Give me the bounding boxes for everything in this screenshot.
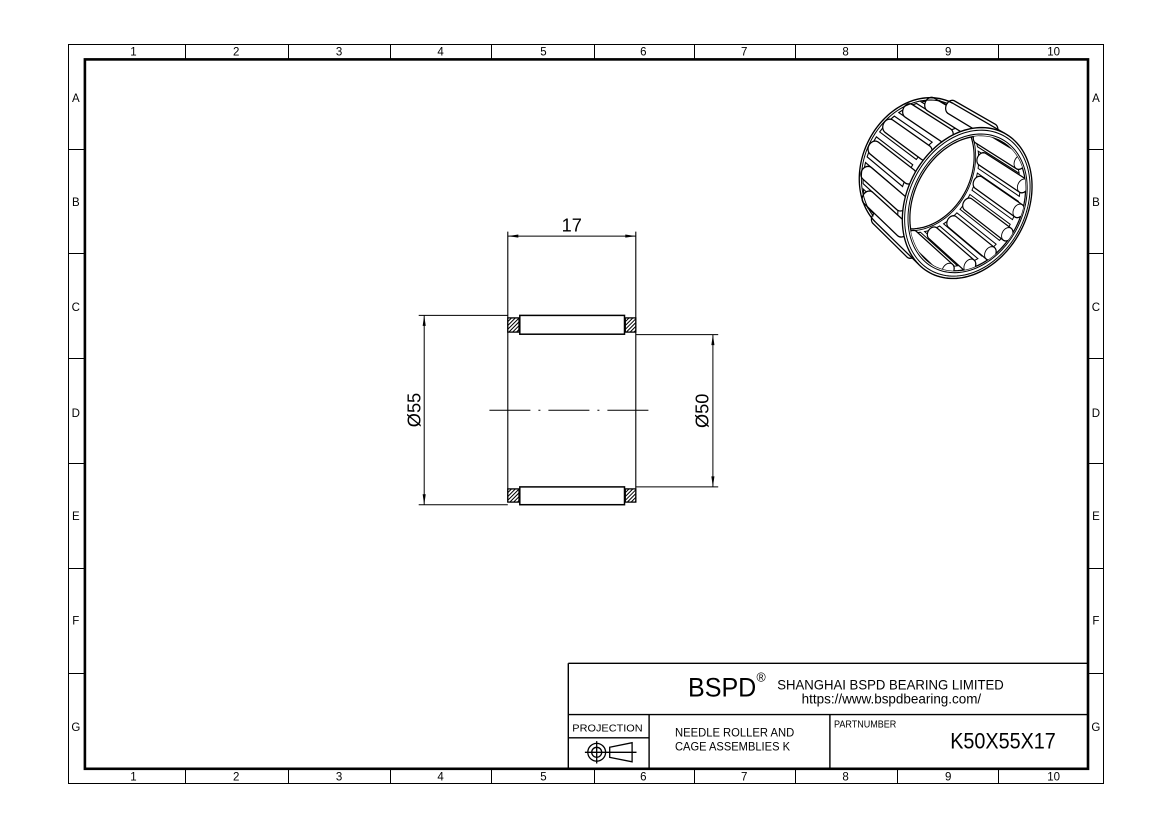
svg-text:Ø50: Ø50 <box>693 394 713 428</box>
svg-text:K50X55X17: K50X55X17 <box>950 729 1056 754</box>
svg-text:10: 10 <box>1047 772 1060 784</box>
svg-text:7: 7 <box>741 772 747 784</box>
svg-text:C: C <box>1092 302 1100 314</box>
svg-text:NEEDLE ROLLER AND: NEEDLE ROLLER AND <box>675 725 794 739</box>
svg-text:8: 8 <box>842 47 848 59</box>
svg-text:PARTNUMBER: PARTNUMBER <box>834 719 896 730</box>
svg-text:5: 5 <box>540 772 546 784</box>
svg-text:D: D <box>1092 408 1100 420</box>
svg-text:B: B <box>1092 197 1100 209</box>
svg-text:E: E <box>72 511 80 523</box>
svg-text:8: 8 <box>842 772 848 784</box>
svg-text:®: ® <box>757 671 767 685</box>
svg-text:F: F <box>1092 616 1099 628</box>
svg-text:3: 3 <box>336 772 342 784</box>
svg-text:1: 1 <box>130 772 136 784</box>
svg-text:BSPD: BSPD <box>688 672 756 702</box>
svg-text:1: 1 <box>130 47 136 59</box>
svg-text:A: A <box>1092 93 1100 105</box>
svg-text:4: 4 <box>437 47 444 59</box>
svg-text:https://www.bspdbearing.com/: https://www.bspdbearing.com/ <box>802 692 982 707</box>
svg-text:PROJECTION: PROJECTION <box>572 723 642 734</box>
svg-text:7: 7 <box>741 47 747 59</box>
svg-text:9: 9 <box>945 47 951 59</box>
svg-text:10: 10 <box>1047 47 1060 59</box>
svg-text:D: D <box>72 408 80 420</box>
svg-text:6: 6 <box>640 47 646 59</box>
svg-text:SHANGHAI BSPD BEARING LIMITED: SHANGHAI BSPD BEARING LIMITED <box>777 677 1004 693</box>
svg-text:5: 5 <box>540 47 546 59</box>
svg-text:9: 9 <box>945 772 951 784</box>
svg-text:Ø55: Ø55 <box>405 393 425 427</box>
svg-text:C: C <box>72 302 80 314</box>
svg-text:B: B <box>72 197 80 209</box>
svg-text:4: 4 <box>437 772 444 784</box>
svg-text:G: G <box>1091 722 1100 734</box>
svg-text:CAGE ASSEMBLIES K: CAGE ASSEMBLIES K <box>675 740 790 754</box>
svg-text:6: 6 <box>640 772 646 784</box>
svg-text:3: 3 <box>336 47 342 59</box>
svg-text:A: A <box>72 93 80 105</box>
svg-text:17: 17 <box>562 215 582 235</box>
svg-text:2: 2 <box>233 772 239 784</box>
svg-text:F: F <box>72 616 79 628</box>
svg-text:2: 2 <box>233 47 239 59</box>
svg-text:G: G <box>71 722 80 734</box>
svg-text:E: E <box>1092 511 1100 523</box>
